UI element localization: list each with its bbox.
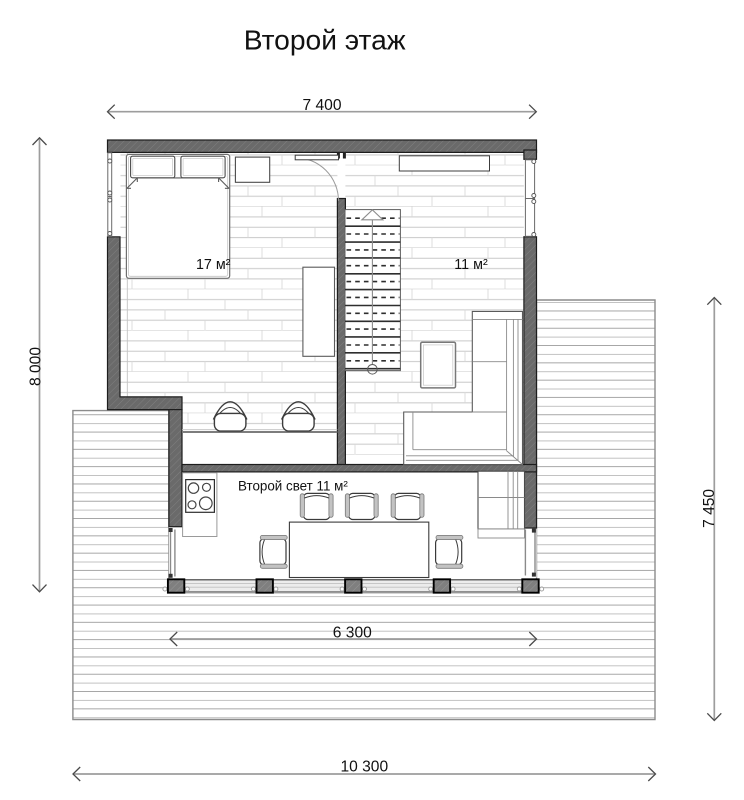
svg-text:7 450: 7 450 (701, 489, 718, 528)
svg-text:17 м²: 17 м² (196, 257, 231, 273)
svg-text:11 м²: 11 м² (454, 257, 488, 273)
svg-text:7 400: 7 400 (302, 97, 341, 114)
svg-text:8 000: 8 000 (27, 347, 44, 386)
svg-text:6 300: 6 300 (333, 625, 372, 642)
svg-text:10 300: 10 300 (340, 759, 388, 776)
svg-text:Второй этаж: Второй этаж (244, 24, 406, 56)
svg-text:Второй свет 11 м²: Второй свет 11 м² (238, 478, 348, 493)
